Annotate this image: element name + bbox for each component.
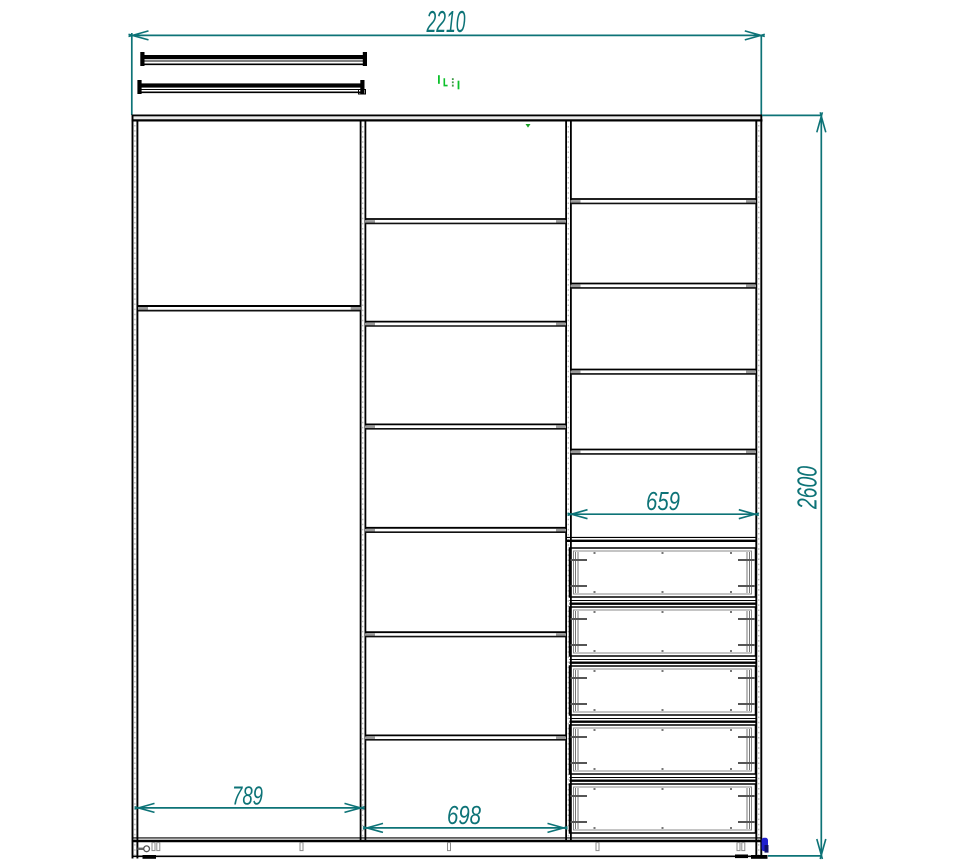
svg-text:659: 659	[646, 486, 680, 516]
svg-text:2210: 2210	[426, 4, 466, 39]
svg-text:2600: 2600	[792, 466, 823, 510]
svg-text:789: 789	[232, 780, 263, 810]
svg-text:698: 698	[447, 800, 481, 830]
